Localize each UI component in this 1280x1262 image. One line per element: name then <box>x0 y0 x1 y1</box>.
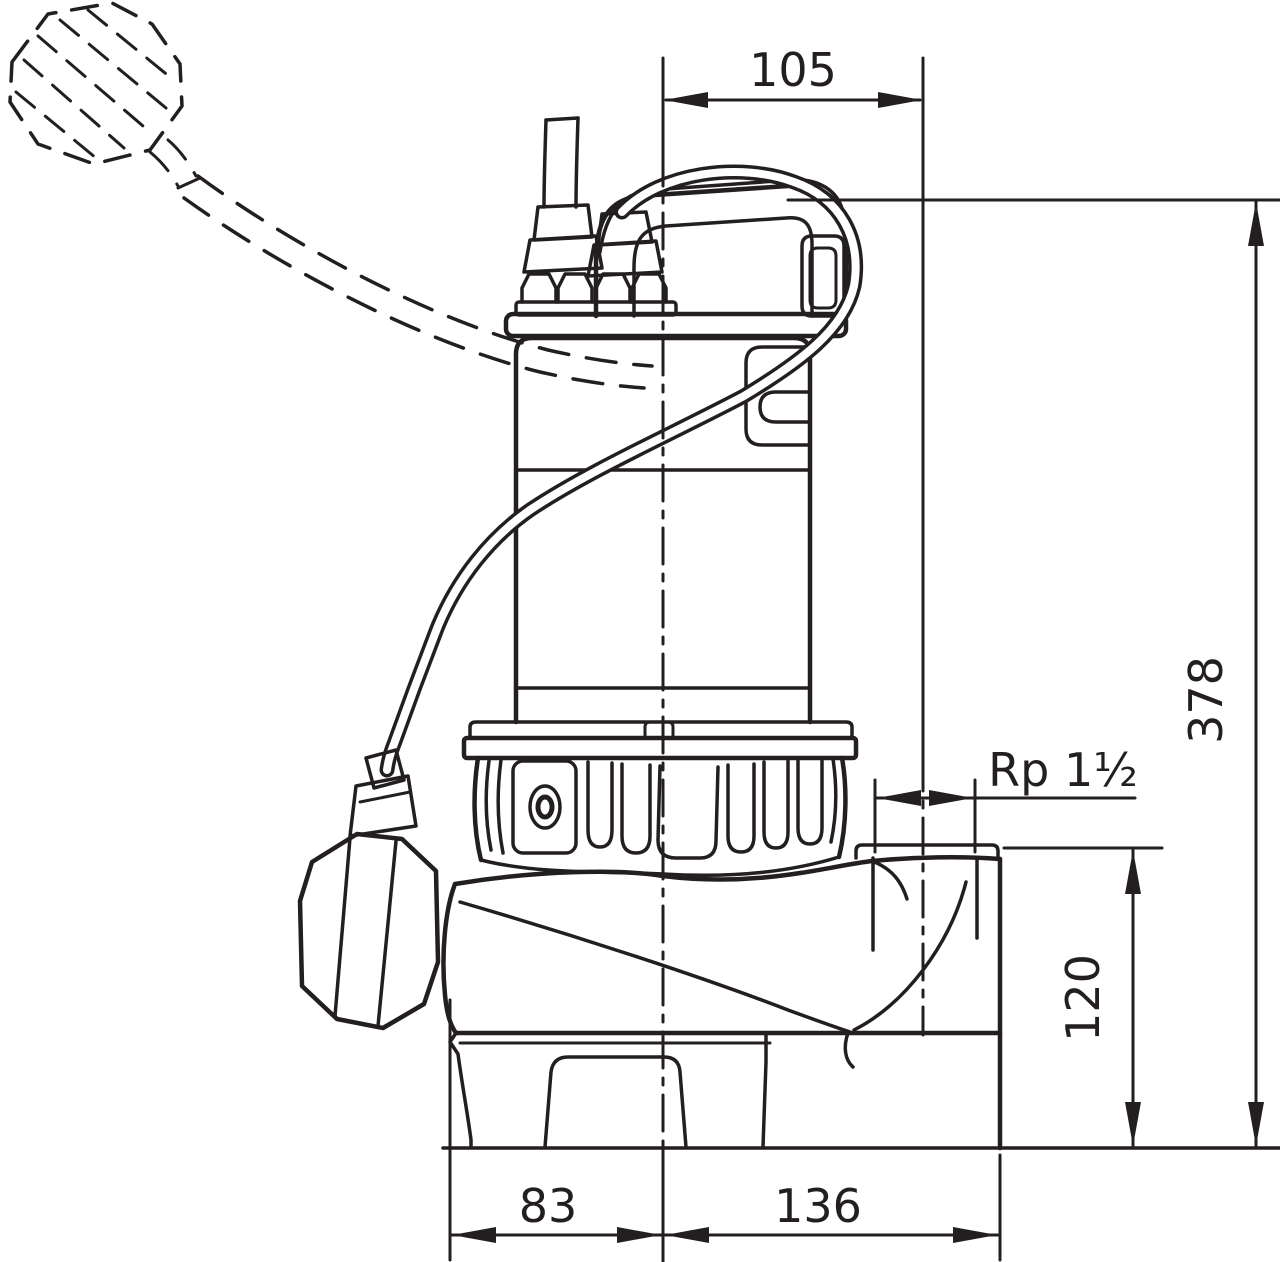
volute-discharge-curve <box>854 882 966 1030</box>
strainer-crown <box>475 758 846 875</box>
crown-panel <box>513 761 576 853</box>
float-seam-right <box>378 841 396 1026</box>
handle-grip-inner <box>810 248 836 308</box>
dim-136-label: 136 <box>774 1179 862 1233</box>
discharge-port <box>856 845 1000 1148</box>
dimension-105: 105 <box>664 43 922 108</box>
left-foot <box>450 1033 471 1147</box>
float-body <box>300 834 438 1028</box>
plug-cable-boot <box>150 140 200 188</box>
power-cable-dashed <box>184 176 652 388</box>
dimension-378: 378 <box>788 200 1280 1146</box>
power-cable-stub <box>544 118 578 207</box>
pump-volute <box>443 857 1000 1033</box>
dim-378-label: 378 <box>1179 656 1233 744</box>
float-seam-left <box>335 838 350 1016</box>
dim-83-label: 83 <box>519 1179 578 1233</box>
pump-dimension-drawing: 105 378 Rp 1½ 120 83 136 <box>0 0 1280 1262</box>
strainer-base <box>443 1033 1280 1148</box>
dim-120-label: 120 <box>1056 954 1110 1042</box>
foot-arch <box>545 1057 686 1147</box>
dimension-83: 83 <box>450 1000 661 1260</box>
plug-outline <box>10 3 182 164</box>
right-foot <box>763 1033 766 1147</box>
dimension-136: 136 <box>665 1155 1000 1260</box>
dimension-rp: Rp 1½ <box>875 743 1138 852</box>
power-plug <box>10 3 200 188</box>
float-switch <box>300 750 438 1028</box>
center-lines <box>663 58 923 1262</box>
volute-spiral-line <box>460 902 850 1032</box>
screw-hole <box>538 797 552 817</box>
clamp-ring <box>464 722 856 758</box>
volute-fillet <box>872 861 907 899</box>
drawing-canvas: 105 378 Rp 1½ 120 83 136 <box>0 0 1280 1262</box>
motor-cap-band <box>506 314 846 336</box>
plug-hatch-lines <box>16 10 176 158</box>
screw-boss <box>530 786 560 828</box>
dim-rp-label: Rp 1½ <box>988 743 1138 797</box>
dimension-120: 120 <box>1004 848 1162 1146</box>
rear-foot-fragment <box>845 1033 853 1067</box>
dim-105-label: 105 <box>749 43 837 97</box>
